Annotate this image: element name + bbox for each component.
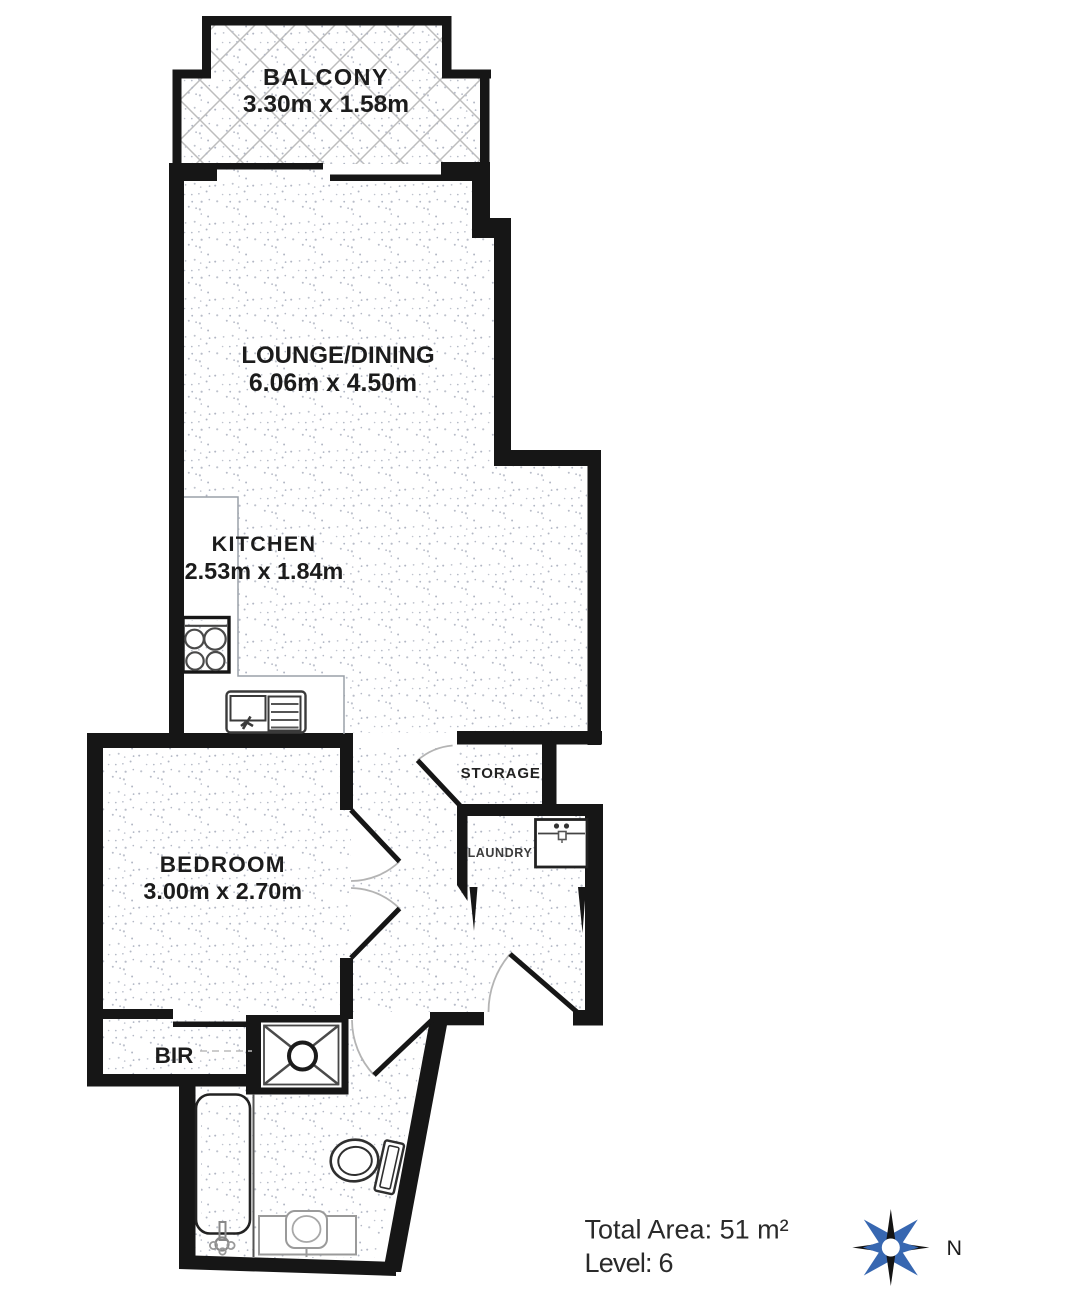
svg-text:2.53m x 1.84m: 2.53m x 1.84m <box>185 558 344 584</box>
svg-text:6.06m x 4.50m: 6.06m x 4.50m <box>249 370 417 397</box>
svg-text:BALCONY: BALCONY <box>263 64 389 90</box>
svg-text:Level: 6: Level: 6 <box>585 1248 673 1278</box>
svg-text:3.00m x 2.70m: 3.00m x 2.70m <box>143 878 302 904</box>
svg-text:KITCHEN: KITCHEN <box>212 532 317 556</box>
svg-text:N: N <box>947 1236 963 1260</box>
svg-text:3.30m x 1.58m: 3.30m x 1.58m <box>243 91 409 118</box>
svg-text:Total Area: 51 m²: Total Area: 51 m² <box>585 1215 789 1245</box>
svg-text:LOUNGE/DINING: LOUNGE/DINING <box>241 342 434 369</box>
svg-text:BEDROOM: BEDROOM <box>160 852 286 877</box>
svg-text:BIR: BIR <box>155 1043 194 1068</box>
svg-text:LAUNDRY: LAUNDRY <box>468 846 533 860</box>
svg-text:STORAGE: STORAGE <box>461 765 541 782</box>
